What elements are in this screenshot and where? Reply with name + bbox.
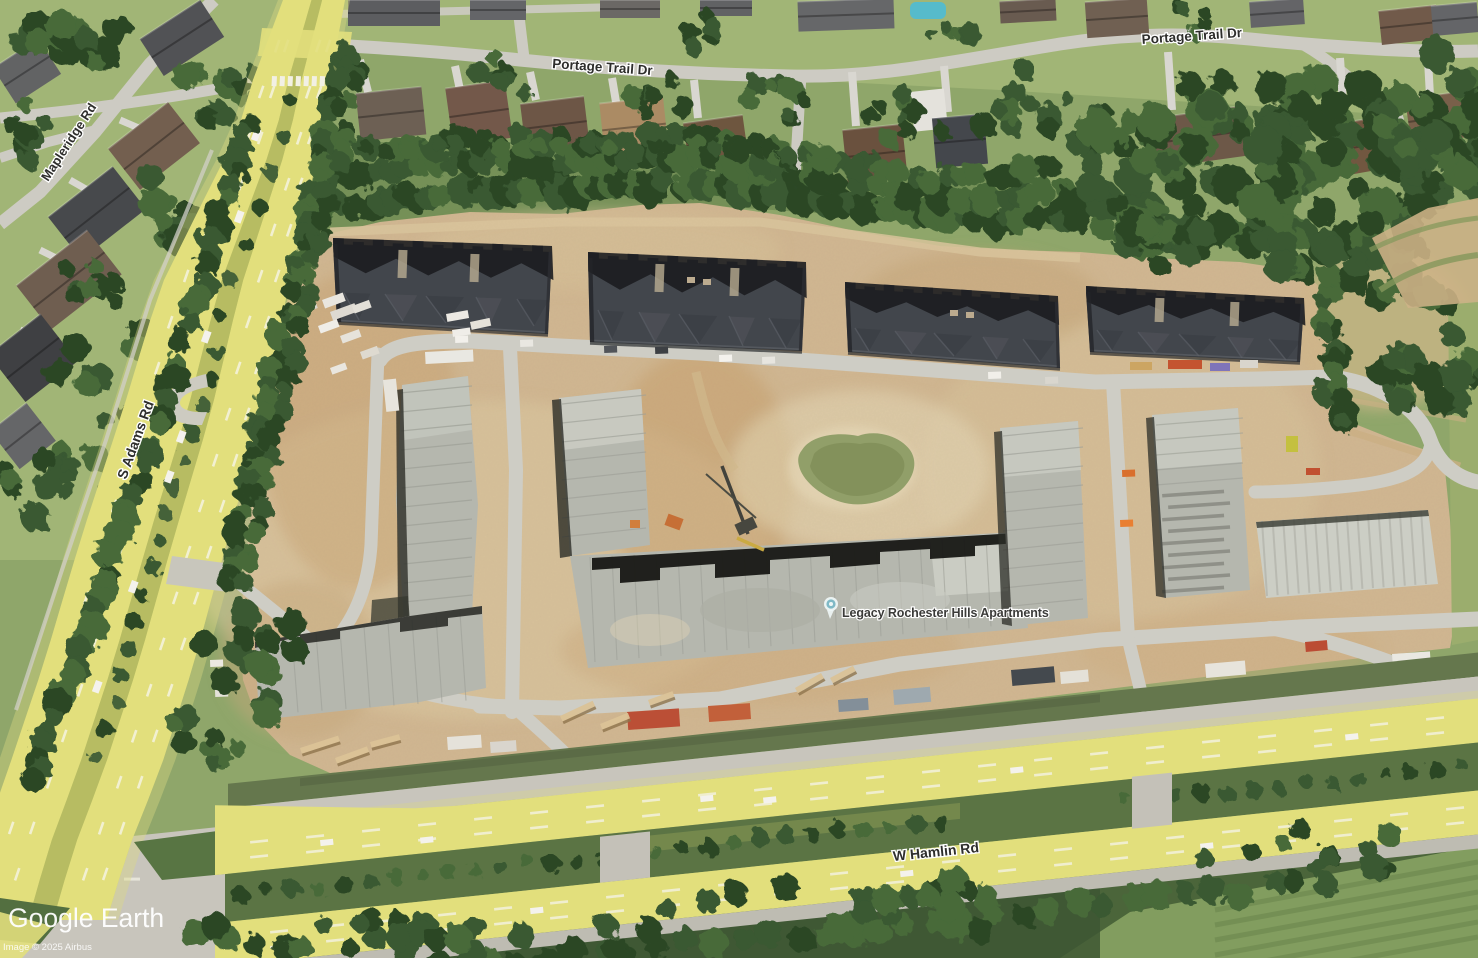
svg-text:Image © 2025 Airbus: Image © 2025 Airbus [3,942,92,953]
svg-text:Google Earth: Google Earth [8,903,164,933]
svg-text:Legacy Rochester Hills Apartme: Legacy Rochester Hills Apartments [842,606,1049,620]
